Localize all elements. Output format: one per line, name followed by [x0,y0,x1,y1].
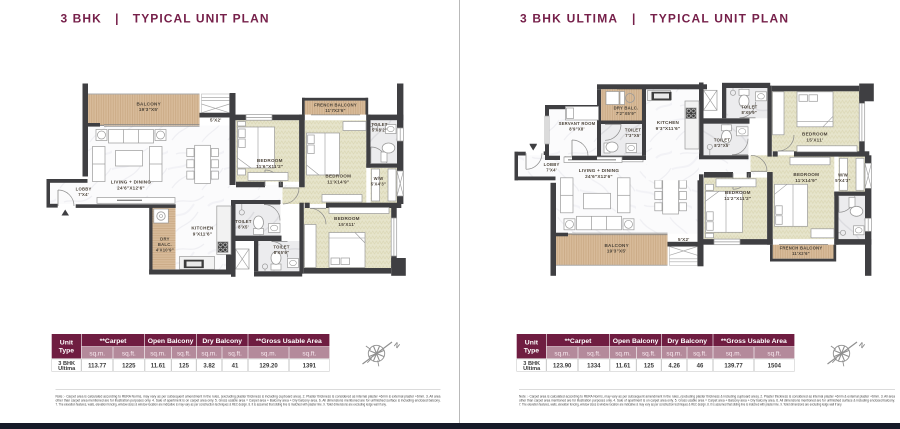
svg-text:11'7X2'6": 11'7X2'6" [325,108,345,113]
svg-text:4'X10'9": 4'X10'9" [156,247,174,252]
svg-text:KITCHEN: KITCHEN [191,226,214,231]
svg-text:sq.ft.: sq.ft. [177,350,191,357]
svg-text:sq.m.: sq.m. [726,350,742,357]
svg-text:**Carpet: **Carpet [100,338,128,345]
svg-text:Open Balcony: Open Balcony [148,338,194,345]
svg-text:11'X2'6": 11'X2'6" [792,251,810,256]
svg-text:41: 41 [232,363,239,369]
svg-text:sq.ft.: sq.ft. [228,350,242,357]
svg-text:**Gross Usable Area: **Gross Usable Area [256,338,322,345]
svg-text:8'X5': 8'X5' [238,224,249,229]
svg-text:LIVING + DINING: LIVING + DINING [579,168,620,173]
svg-text:TOILET: TOILET [371,122,388,127]
svg-text:sq.ft.: sq.ft. [767,350,781,357]
svg-text:8'X5'9": 8'X5'9" [742,110,758,115]
svg-text:5'X8'2": 5'X8'2" [372,127,388,132]
svg-text:11.61: 11.61 [151,363,166,369]
svg-text:BEDROOM: BEDROOM [725,190,751,195]
svg-text:11'6"X11'2": 11'6"X11'2" [256,164,283,169]
svg-text:7. The elevation features, wal: 7. The elevation features, walls, elevat… [519,403,842,407]
svg-text:1225: 1225 [122,363,136,369]
svg-text:7'3"X5': 7'3"X5' [625,133,641,138]
svg-text:Unit: Unit [525,340,539,347]
svg-text:3.82: 3.82 [203,363,215,369]
svg-text:BALC.: BALC. [158,242,172,247]
svg-text:BEDROOM: BEDROOM [802,132,828,137]
svg-text:15'X11': 15'X11' [338,222,355,227]
svg-text:46: 46 [697,363,704,369]
svg-text:7'X4': 7'X4' [546,167,557,172]
svg-text:9'X11'6": 9'X11'6" [193,231,212,236]
svg-text:BEDROOM: BEDROOM [325,174,351,179]
svg-text:24'6"X12'6": 24'6"X12'6" [585,174,613,179]
svg-text:11'X14'9": 11'X14'9" [327,179,349,184]
svg-text:FRENCH BALCONY: FRENCH BALCONY [314,103,357,108]
svg-text:sq.ft.: sq.ft. [642,350,656,357]
svg-text:sq.m.: sq.m. [261,350,277,357]
svg-text:4.26: 4.26 [668,363,680,369]
svg-text:Type: Type [524,348,540,355]
svg-text:FRENCH BALCONY: FRENCH BALCONY [780,246,823,251]
svg-text:24'6"X12'6": 24'6"X12'6" [117,185,145,190]
svg-text:Ultima: Ultima [58,366,76,372]
svg-text:TOILET: TOILET [625,128,642,133]
svg-text:LOBBY: LOBBY [544,162,560,167]
svg-text:19'3"X5': 19'3"X5' [139,107,159,112]
svg-text:sq.m.: sq.m. [201,350,217,357]
svg-text:BALCONY: BALCONY [136,101,160,106]
svg-text:1504: 1504 [768,363,782,369]
svg-text:11'2"X11'2": 11'2"X11'2" [724,196,751,201]
svg-text:W/W: W/W [374,176,384,181]
svg-text:sq.m.: sq.m. [554,350,570,357]
svg-text:9'3"X11'6": 9'3"X11'6" [656,126,681,131]
svg-text:8'2"X5': 8'2"X5' [714,143,730,148]
svg-text:3 BHK ULTIMA | TYPICAL UNI: 3 BHK ULTIMA | TYPICAL UNIT PLAN [520,12,790,26]
svg-text:sq.m.: sq.m. [89,350,105,357]
svg-text:LOBBY: LOBBY [76,187,92,192]
svg-text:SERVANT ROOM: SERVANT ROOM [559,121,596,126]
svg-text:Type: Type [59,348,75,355]
svg-text:**Carpet: **Carpet [565,338,593,345]
svg-text:5'X2': 5'X2' [678,237,690,242]
svg-text:5'X2': 5'X2' [210,117,222,122]
svg-text:Dry Balcony: Dry Balcony [202,338,242,345]
svg-text:139.77: 139.77 [724,363,743,369]
svg-text:DRY: DRY [160,237,169,242]
svg-text:129.20: 129.20 [259,363,278,369]
svg-text:7'2"X5'9": 7'2"X5'9" [616,111,636,116]
svg-text:sq.ft.: sq.ft. [587,350,601,357]
svg-text:125: 125 [644,363,655,369]
svg-text:sq.ft.: sq.ft. [122,350,136,357]
svg-text:TOILET: TOILET [273,245,290,250]
svg-text:125: 125 [179,363,190,369]
svg-text:11'X14'9": 11'X14'9" [795,178,817,183]
svg-text:**Gross Usable Area: **Gross Usable Area [721,338,787,345]
svg-text:Unit: Unit [60,340,74,347]
svg-text:TOILET: TOILET [741,105,758,110]
svg-text:123.90: 123.90 [553,363,572,369]
svg-text:sq.ft.: sq.ft. [693,350,707,357]
svg-text:TOILET: TOILET [714,138,731,143]
svg-text:DRY BALC.: DRY BALC. [614,106,639,111]
svg-text:5'X4'3": 5'X4'3" [371,181,387,186]
svg-text:7'X4': 7'X4' [78,192,89,197]
svg-text:sq.ft.: sq.ft. [302,350,316,357]
svg-text:8'9"X8': 8'9"X8' [569,126,585,131]
svg-text:LIVING + DINING: LIVING + DINING [111,180,152,185]
svg-text:5'X4'3": 5'X4'3" [835,178,851,183]
svg-text:BEDROOM: BEDROOM [334,216,360,221]
svg-text:3 BHK | TYPICAL UNIT PLAN: 3 BHK | TYPICAL UNIT PLAN [61,12,271,26]
svg-text:1391: 1391 [303,363,317,369]
svg-text:8'X5'9": 8'X5'9" [274,250,290,255]
svg-text:sq.m.: sq.m. [615,350,631,357]
svg-text:Dry Balcony: Dry Balcony [667,338,707,345]
svg-text:1334: 1334 [587,363,601,369]
svg-text:Open Balcony: Open Balcony [613,338,659,345]
svg-text:7. The elevation features, wal: 7. The elevation features, walls, elevat… [56,403,387,407]
svg-text:19'3"X5': 19'3"X5' [607,249,627,254]
svg-text:W/W: W/W [838,173,848,178]
svg-text:TOILET: TOILET [235,219,252,224]
svg-text:KITCHEN: KITCHEN [657,120,680,125]
svg-text:BEDROOM: BEDROOM [793,172,819,177]
svg-text:113.77: 113.77 [88,363,107,369]
svg-text:BALCONY: BALCONY [604,243,628,248]
svg-text:sq.m.: sq.m. [666,350,682,357]
svg-text:sq.m.: sq.m. [150,350,166,357]
svg-text:15'X11': 15'X11' [806,137,823,142]
svg-text:11.61: 11.61 [616,363,631,369]
svg-text:BEDROOM: BEDROOM [257,158,283,163]
svg-text:Ultima: Ultima [523,366,541,372]
